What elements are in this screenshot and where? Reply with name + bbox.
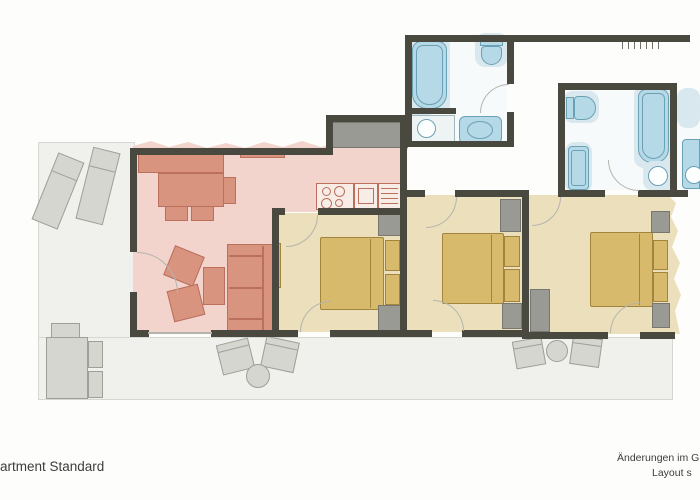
window: [148, 332, 212, 334]
nightstand: [653, 272, 668, 302]
outdoor-chair: [512, 337, 546, 370]
outdoor-table: [46, 337, 88, 399]
toilet-2-tank: [566, 97, 574, 119]
wall: [640, 332, 675, 339]
sofa-armrest-line: [229, 255, 262, 257]
nightstand: [385, 240, 400, 271]
nightstand: [504, 236, 520, 267]
outdoor-chair: [569, 335, 603, 368]
shower-tray-inner: [467, 121, 493, 139]
nightstand: [653, 240, 668, 270]
counter-divider: [377, 184, 379, 209]
lounger-line: [89, 165, 115, 172]
nightstand: [504, 269, 520, 302]
chair-line: [573, 342, 601, 347]
wall: [211, 330, 272, 337]
dining-chair: [191, 206, 214, 221]
floor-plan: artment Standard Änderungen im Grun Layo…: [0, 0, 700, 500]
shower-2-inner: [571, 150, 586, 186]
radiator-tick: [640, 42, 641, 49]
wall: [462, 330, 529, 337]
wall: [400, 190, 425, 197]
wall: [558, 83, 677, 90]
bed-fold-line: [639, 234, 640, 305]
cooktop-burner: [335, 199, 343, 207]
dining-table: [158, 173, 224, 207]
wall: [560, 190, 605, 197]
wall: [638, 190, 688, 197]
outdoor-round-table: [246, 364, 270, 388]
wall: [272, 208, 279, 337]
bathtub-inner: [416, 45, 443, 105]
wall: [405, 35, 690, 42]
drainer-line: [381, 188, 398, 189]
wall: [400, 330, 432, 337]
double-bed: [320, 237, 384, 310]
sofa-armrest-line: [229, 318, 262, 320]
wall: [130, 148, 333, 155]
drainer-line: [381, 198, 398, 199]
caption-disclaimer: Änderungen im Grun Layout s: [617, 451, 700, 480]
radiator-tick: [646, 42, 647, 49]
caption-apartment-standard: artment Standard: [0, 459, 104, 474]
wall: [405, 141, 514, 147]
bathroom-3-splash: [677, 88, 700, 128]
double-bed: [442, 233, 504, 304]
wall: [272, 208, 285, 215]
wall: [507, 42, 514, 84]
wardrobe: [502, 303, 522, 329]
outdoor-chair: [88, 371, 103, 398]
coffee-table: [203, 267, 225, 305]
caption-right-line2: Layout s: [652, 466, 700, 481]
drainer-line: [381, 193, 398, 194]
chair-line: [514, 344, 542, 350]
kitchen-sink: [358, 188, 374, 204]
wardrobe: [378, 305, 402, 331]
wall: [405, 108, 456, 114]
sofa-backrest-line: [262, 246, 264, 330]
chair-line: [218, 345, 248, 354]
wall: [330, 330, 407, 337]
double-bed: [590, 232, 653, 307]
wall: [130, 330, 149, 337]
dining-chair: [165, 206, 188, 221]
drainer-line: [381, 203, 398, 204]
sofa-cushion-line: [229, 287, 262, 289]
wall: [130, 148, 137, 252]
outdoor-chair: [88, 341, 103, 368]
washbasin-3: [685, 166, 700, 184]
radiator-tick: [634, 42, 635, 49]
wall: [522, 332, 608, 339]
wall: [318, 208, 407, 215]
hall-wardrobe: [330, 122, 408, 148]
washbasin-2: [648, 166, 668, 186]
wardrobe: [530, 289, 550, 332]
lounger-line: [52, 170, 77, 181]
bed-fold-line: [491, 235, 492, 302]
radiator-tick: [622, 42, 623, 49]
caption-right-line1: Änderungen im Grun: [617, 451, 700, 466]
wardrobe: [651, 211, 670, 233]
wardrobe: [500, 199, 521, 232]
outdoor-round-table: [546, 340, 568, 362]
cooktop-burner: [334, 186, 345, 197]
washbasin: [417, 119, 436, 138]
caption-left-text: artment Standard: [0, 459, 104, 474]
cooktop-burner: [322, 187, 331, 196]
radiator-tick: [652, 42, 653, 49]
sideboard: [138, 152, 224, 173]
dining-chair: [223, 177, 236, 204]
wall: [272, 330, 298, 337]
radiator-tick: [658, 42, 659, 49]
wall: [455, 190, 529, 197]
wall: [558, 83, 565, 197]
bathtub-2-inner: [642, 93, 665, 159]
wall: [522, 190, 529, 337]
counter-divider: [353, 184, 355, 209]
chair-line: [266, 343, 298, 351]
nightstand: [385, 274, 400, 305]
wall: [400, 115, 407, 337]
wardrobe: [378, 213, 402, 236]
bed-fold-line: [370, 239, 371, 308]
wall: [670, 83, 677, 197]
wardrobe: [652, 303, 670, 328]
radiator-tick: [628, 42, 629, 49]
outdoor-chair: [51, 323, 80, 338]
